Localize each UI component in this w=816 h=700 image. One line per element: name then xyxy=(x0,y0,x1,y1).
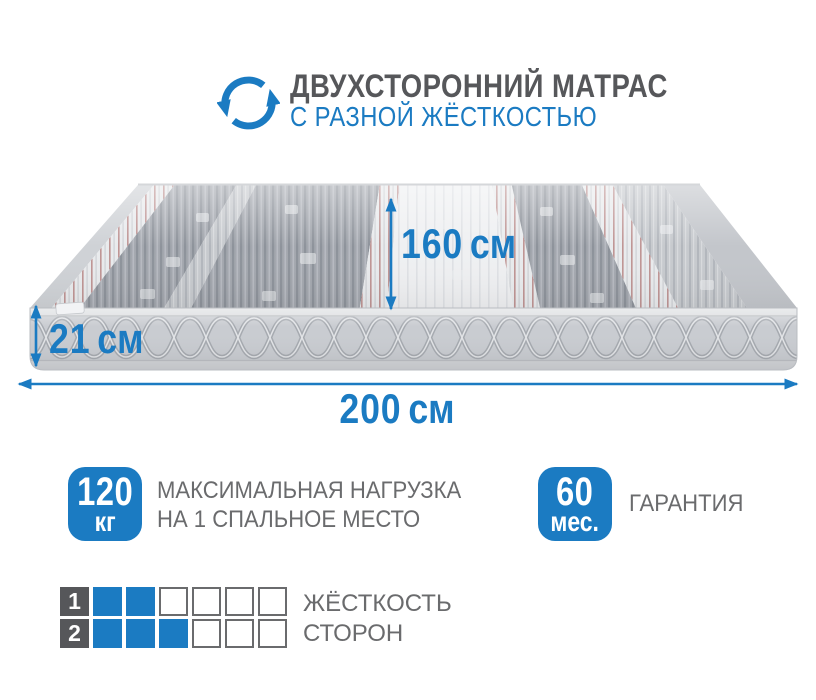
warranty-badge: 60 мес. xyxy=(538,467,612,541)
height-unit: см xyxy=(97,318,143,360)
warranty-value: 60 xyxy=(551,475,600,510)
firmness-label-line2: СТОРОН xyxy=(303,619,452,649)
firmness-scale: 1 2 xyxy=(60,587,287,648)
mattress-front-face xyxy=(30,302,797,370)
firmness-square-filled xyxy=(93,587,122,616)
firmness-square-empty xyxy=(258,587,287,616)
firmness-label-line1: ЖЁСТКОСТЬ xyxy=(303,589,452,619)
mattress-illustration xyxy=(0,165,816,400)
firmness-square-filled xyxy=(93,619,122,648)
warranty-unit: мес. xyxy=(551,510,600,534)
max-load-label: МАКСИМАЛЬНАЯ НАГРУЗКА НА 1 СПАЛЬНОЕ МЕСТ… xyxy=(157,476,461,534)
max-load-badge: 120 кг xyxy=(68,467,142,541)
height-value: 21 xyxy=(49,318,90,360)
rotate-arrows-icon xyxy=(217,71,280,135)
warranty-badge-inner: 60 мес. xyxy=(551,475,600,534)
firmness-square-filled xyxy=(126,619,155,648)
firmness-square-empty xyxy=(225,619,254,648)
mattress-infographic: ДВУХСТОРОННИЙ МАТРАС С РАЗНОЙ ЖЁСТКОСТЬЮ xyxy=(0,0,816,700)
firmness-side-2-squares xyxy=(93,619,287,648)
max-load-label-line2: НА 1 СПАЛЬНОЕ МЕСТО xyxy=(157,505,461,534)
max-load-label-line1: МАКСИМАЛЬНАЯ НАГРУЗКА xyxy=(157,476,461,505)
firmness-square-empty xyxy=(258,619,287,648)
page-title: ДВУХСТОРОННИЙ МАТРАС xyxy=(290,69,668,103)
firmness-square-empty xyxy=(192,619,221,648)
page-subtitle: С РАЗНОЙ ЖЁСТКОСТЬЮ xyxy=(290,102,597,132)
firmness-square-filled xyxy=(159,619,188,648)
length-dimension-label: 200 см xyxy=(304,388,491,430)
depth-unit: см xyxy=(470,223,516,265)
max-load-badge-inner: 120 кг xyxy=(77,475,133,534)
firmness-square-empty xyxy=(192,587,221,616)
firmness-side-2-row: 2 xyxy=(60,619,287,648)
firmness-label: ЖЁСТКОСТЬ СТОРОН xyxy=(303,589,452,649)
depth-value: 160 xyxy=(401,223,463,265)
firmness-square-empty xyxy=(225,587,254,616)
length-unit: см xyxy=(408,388,454,430)
side-2-number-square: 2 xyxy=(60,619,89,648)
max-load-value: 120 xyxy=(77,475,133,510)
firmness-side-1-row: 1 xyxy=(60,587,287,616)
height-dimension-label: 21 см xyxy=(49,318,143,360)
side-1-number-square: 1 xyxy=(60,587,89,616)
mattress-label-tag xyxy=(56,302,85,315)
warranty-label: ГАРАНТИЯ xyxy=(629,489,743,518)
firmness-side-1-squares xyxy=(93,587,287,616)
depth-dimension-label: 160 см xyxy=(401,223,516,265)
firmness-square-empty xyxy=(159,587,188,616)
length-value: 200 xyxy=(339,388,401,430)
warranty-label-line1: ГАРАНТИЯ xyxy=(629,489,743,518)
firmness-square-filled xyxy=(126,587,155,616)
